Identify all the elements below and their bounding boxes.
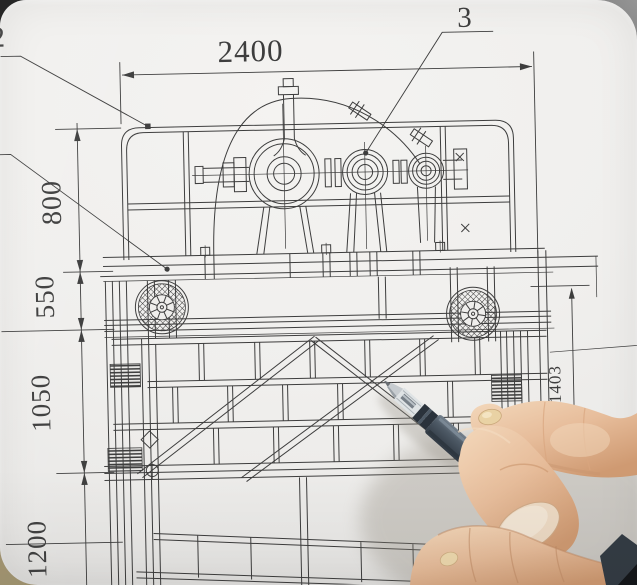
photo-of-engineering-drawing: 2400 800 550 1050 1200 1403 xyxy=(0,0,637,585)
hand-with-pen xyxy=(0,0,637,585)
